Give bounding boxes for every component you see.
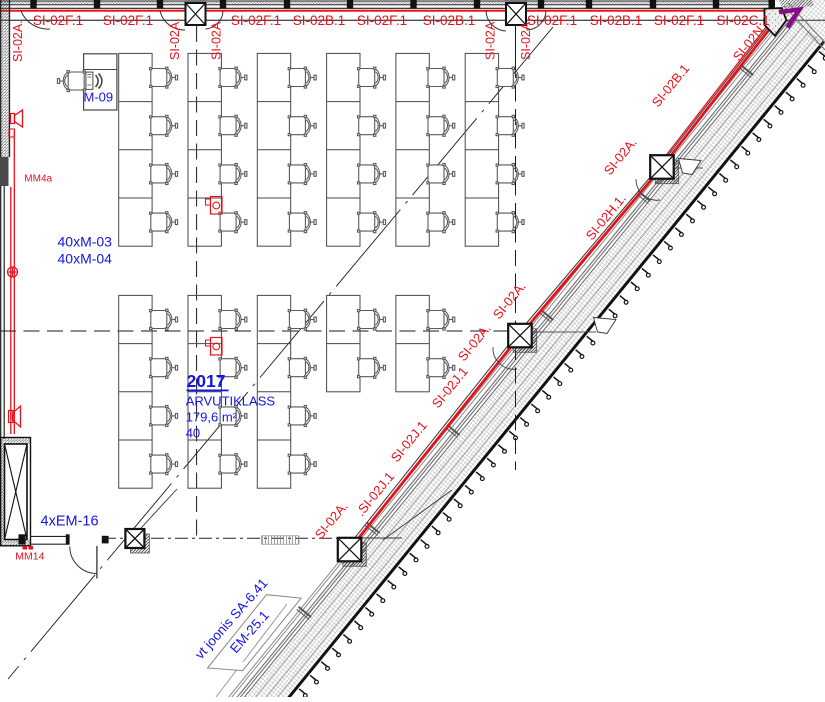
svg-text:40xM-04: 40xM-04 xyxy=(58,251,113,267)
svg-text:SI-02A.: SI-02A. xyxy=(11,20,25,62)
svg-text:SI-02A.: SI-02A. xyxy=(168,18,182,60)
svg-text:SI-02B.1: SI-02B.1 xyxy=(293,13,346,28)
svg-text:SI-02F.1: SI-02F.1 xyxy=(33,13,83,28)
svg-text:40: 40 xyxy=(186,426,200,441)
svg-text:MM14: MM14 xyxy=(15,551,44,563)
svg-text:SI-02F.1: SI-02F.1 xyxy=(231,13,281,28)
svg-text:4xEM-16: 4xEM-16 xyxy=(41,514,99,530)
svg-text:SI-02F.1: SI-02F.1 xyxy=(527,13,577,28)
svg-text:ARVUTIKLASS: ARVUTIKLASS xyxy=(186,394,276,409)
svg-text:SI-02B.1: SI-02B.1 xyxy=(590,13,643,28)
svg-text:40xM-03: 40xM-03 xyxy=(58,234,113,250)
svg-text:MM4a: MM4a xyxy=(24,174,52,185)
svg-text:SI-02F.1: SI-02F.1 xyxy=(357,13,407,28)
svg-text:SI-02C.1: SI-02C.1 xyxy=(716,13,769,28)
svg-text:SI-02A.: SI-02A. xyxy=(519,18,533,60)
svg-text:179,6 m²: 179,6 m² xyxy=(186,410,238,425)
svg-text:SI-02A.: SI-02A. xyxy=(210,18,224,60)
svg-text:SI-02A.: SI-02A. xyxy=(484,18,498,60)
svg-text:2017: 2017 xyxy=(187,371,226,391)
svg-text:SI-02B.1: SI-02B.1 xyxy=(423,13,476,28)
svg-text:SI-02F.1: SI-02F.1 xyxy=(654,13,704,28)
svg-text:M-09: M-09 xyxy=(84,90,114,105)
svg-text:SI-02F.1: SI-02F.1 xyxy=(103,13,153,28)
